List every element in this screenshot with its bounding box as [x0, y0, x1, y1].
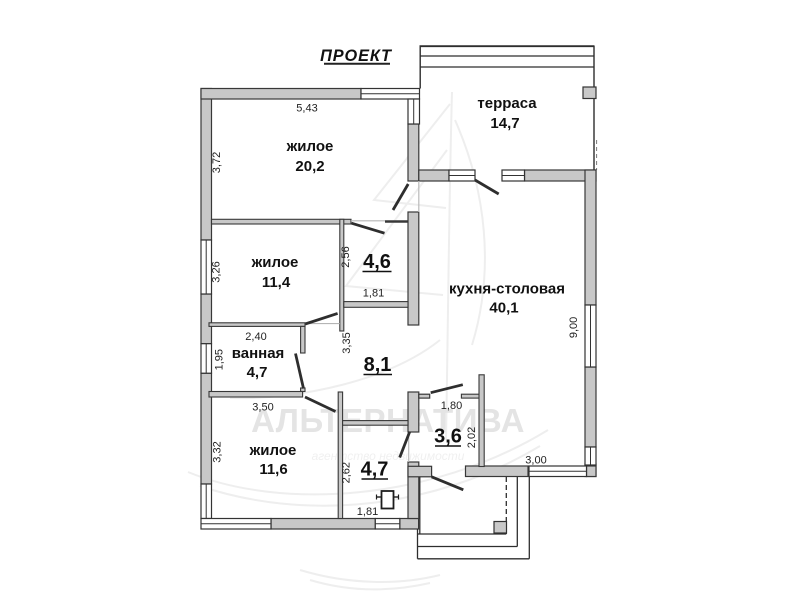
svg-text:2,40: 2,40 [245, 331, 266, 343]
svg-text:3,32: 3,32 [212, 441, 224, 462]
svg-text:14,7: 14,7 [490, 115, 519, 132]
svg-text:2,56: 2,56 [340, 246, 352, 267]
svg-text:40,1: 40,1 [489, 300, 518, 317]
svg-text:11,4: 11,4 [262, 274, 291, 291]
svg-text:3,72: 3,72 [211, 152, 223, 173]
svg-text:11,6: 11,6 [259, 461, 287, 478]
svg-text:ПРОЕКТ: ПРОЕКТ [320, 47, 393, 65]
svg-text:кухня-столовая: кухня-столовая [449, 281, 565, 298]
svg-text:1,80: 1,80 [441, 400, 462, 412]
svg-text:жилое: жилое [249, 442, 297, 459]
svg-text:1,81: 1,81 [363, 288, 384, 300]
svg-text:1,95: 1,95 [213, 349, 225, 370]
svg-text:4,6: 4,6 [363, 251, 391, 273]
svg-text:ванная: ванная [232, 345, 285, 362]
svg-text:3,50: 3,50 [252, 402, 273, 414]
svg-text:3,26: 3,26 [211, 261, 223, 282]
svg-text:терраса: терраса [477, 95, 537, 112]
svg-text:4,7: 4,7 [361, 459, 389, 481]
svg-text:жилое: жилое [251, 254, 299, 271]
svg-text:4,7: 4,7 [247, 364, 268, 381]
svg-text:2,02: 2,02 [466, 427, 478, 448]
svg-text:5,43: 5,43 [296, 103, 317, 115]
svg-text:3,00: 3,00 [525, 455, 546, 467]
svg-text:жилое: жилое [286, 138, 334, 155]
svg-text:9,00: 9,00 [568, 317, 580, 338]
svg-text:20,2: 20,2 [295, 158, 324, 175]
svg-text:3,6: 3,6 [434, 426, 462, 448]
svg-text:1,81: 1,81 [357, 506, 378, 518]
svg-text:3,35: 3,35 [341, 332, 353, 353]
svg-text:2,62: 2,62 [341, 462, 353, 483]
svg-text:8,1: 8,1 [364, 354, 392, 376]
